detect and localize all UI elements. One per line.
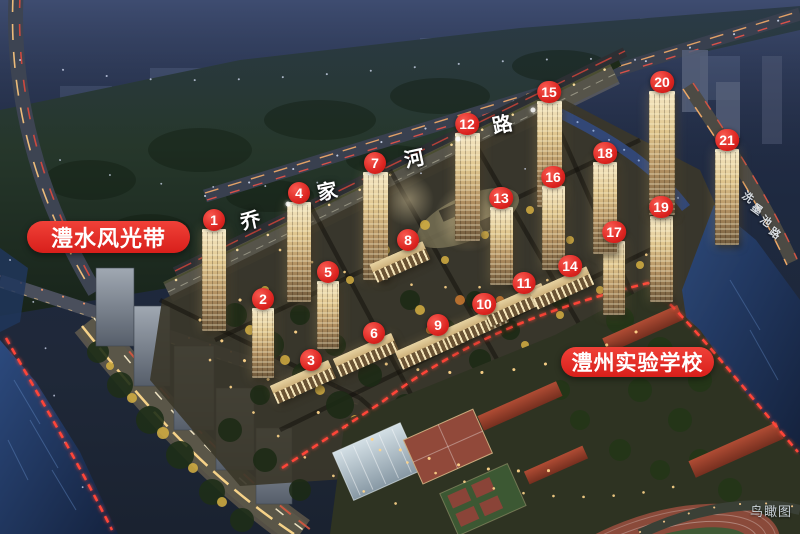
building-12 xyxy=(455,133,480,241)
building-4 xyxy=(287,202,311,302)
building-marker-12: 12 xyxy=(455,113,479,135)
building-2 xyxy=(252,308,274,378)
area-label-scenic-belt: 澧水风光带 xyxy=(27,221,190,253)
building-marker-14: 14 xyxy=(558,255,582,277)
building-marker-3: 3 xyxy=(300,349,322,371)
building-19 xyxy=(650,216,673,302)
building-marker-16: 16 xyxy=(541,166,565,188)
main-road-dot-2 xyxy=(456,137,461,142)
building-marker-15: 15 xyxy=(537,81,561,103)
corner-note: 鸟瞰图 xyxy=(750,501,792,520)
building-marker-7: 7 xyxy=(364,152,386,174)
building-marker-2: 2 xyxy=(252,288,274,310)
building-marker-11: 11 xyxy=(513,272,536,294)
building-marker-5: 5 xyxy=(317,261,339,283)
area-label-school: 澧州实验学校 xyxy=(561,347,714,377)
main-road-dot-3 xyxy=(531,108,536,113)
building-marker-8: 8 xyxy=(397,229,419,251)
building-marker-1: 1 xyxy=(203,209,225,231)
building-marker-18: 18 xyxy=(593,142,617,164)
main-road-dot-0 xyxy=(286,202,291,207)
building-13 xyxy=(490,207,513,285)
building-marker-6: 6 xyxy=(363,322,385,344)
building-marker-9: 9 xyxy=(427,314,449,336)
building-marker-20: 20 xyxy=(650,71,674,93)
building-marker-13: 13 xyxy=(489,187,513,209)
building-marker-21: 21 xyxy=(715,129,739,151)
building-marker-4: 4 xyxy=(288,182,310,204)
building-marker-10: 10 xyxy=(472,293,496,315)
building-marker-17: 17 xyxy=(602,221,626,243)
building-5 xyxy=(317,281,339,349)
aerial-rendering: 123456789101112131415161718192021 乔家河路 洗… xyxy=(0,0,800,534)
building-1 xyxy=(202,229,226,331)
building-21 xyxy=(715,149,739,245)
building-marker-19: 19 xyxy=(649,196,673,218)
river-left xyxy=(0,340,118,534)
